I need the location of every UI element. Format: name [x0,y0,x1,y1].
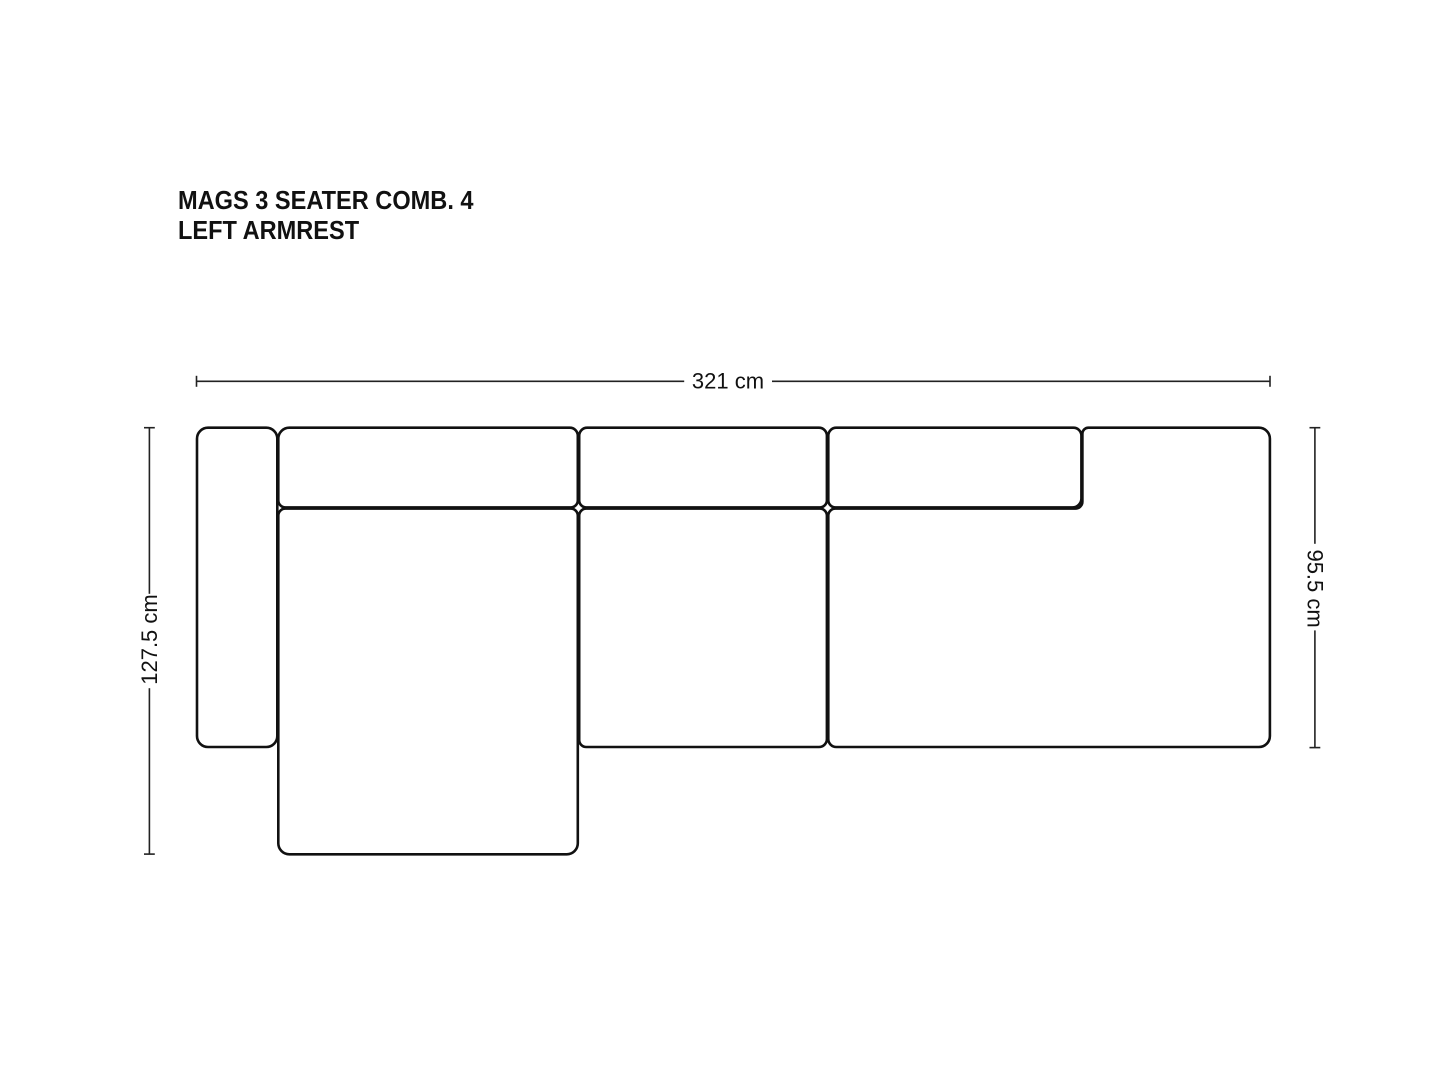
svg-text:127.5 cm: 127.5 cm [137,594,162,685]
svg-text:95.5 cm: 95.5 cm [1303,549,1328,627]
svg-text:321 cm: 321 cm [692,369,764,394]
